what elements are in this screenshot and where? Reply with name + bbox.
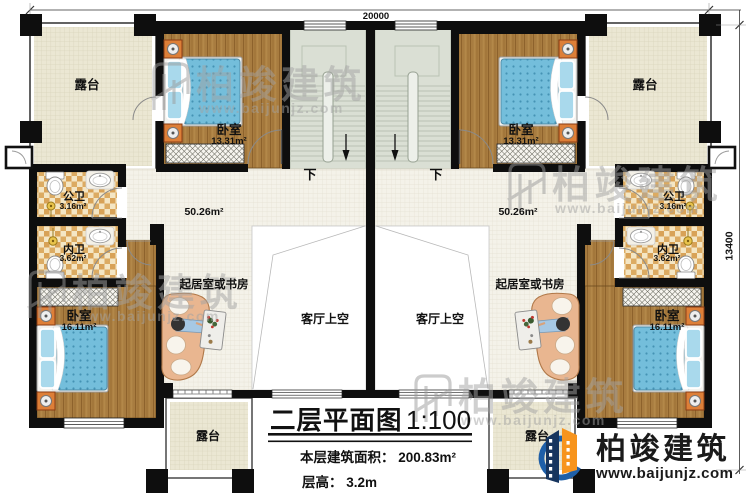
svg-text:露台: 露台 bbox=[74, 77, 99, 92]
svg-text:16.11m²: 16.11m² bbox=[62, 322, 97, 333]
svg-text:起居室或书房: 起居室或书房 bbox=[179, 277, 249, 291]
svg-text:客厅上空: 客厅上空 bbox=[300, 311, 349, 326]
svg-text:50.26m²: 50.26m² bbox=[498, 206, 538, 218]
svg-text:起居室或书房: 起居室或书房 bbox=[495, 277, 565, 291]
svg-text:露台: 露台 bbox=[632, 77, 657, 92]
svg-text:3.62m²: 3.62m² bbox=[654, 253, 681, 263]
svg-text:3.62m²: 3.62m² bbox=[60, 253, 87, 263]
svg-text:16.11m²: 16.11m² bbox=[650, 322, 685, 333]
svg-text:www.baijunjz.com: www.baijunjz.com bbox=[198, 100, 344, 116]
svg-text:50.26m²: 50.26m² bbox=[184, 206, 224, 218]
svg-text:13.31m²: 13.31m² bbox=[503, 136, 538, 147]
svg-text:www.baijunjz.com: www.baijunjz.com bbox=[595, 465, 733, 482]
svg-text:柏竣建筑: 柏竣建筑 bbox=[596, 432, 730, 466]
svg-text:本层建筑面积： 200.83m²: 本层建筑面积： 200.83m² bbox=[300, 449, 457, 465]
svg-text:3.16m²: 3.16m² bbox=[660, 201, 687, 211]
svg-text:下: 下 bbox=[303, 167, 316, 182]
svg-text:卧室: 卧室 bbox=[66, 308, 92, 323]
svg-text:下: 下 bbox=[429, 167, 442, 182]
svg-text:露台: 露台 bbox=[525, 428, 549, 443]
svg-text:3.16m²: 3.16m² bbox=[60, 201, 87, 211]
svg-text:卧室: 卧室 bbox=[508, 122, 534, 137]
svg-text:层高： 3.2m: 层高： 3.2m bbox=[302, 474, 377, 490]
svg-text:露台: 露台 bbox=[196, 428, 220, 443]
svg-text:13400: 13400 bbox=[724, 231, 736, 260]
svg-text:www.baijunjz.com: www.baijunjz.com bbox=[460, 412, 606, 428]
svg-text:20000: 20000 bbox=[363, 11, 389, 22]
svg-text:卧室: 卧室 bbox=[216, 122, 242, 137]
svg-text:卧室: 卧室 bbox=[654, 308, 680, 323]
svg-text:1:100: 1:100 bbox=[406, 405, 471, 435]
svg-text:13.31m²: 13.31m² bbox=[211, 136, 246, 147]
svg-text:客厅上空: 客厅上空 bbox=[415, 311, 464, 326]
svg-text:二层平面图: 二层平面图 bbox=[270, 407, 403, 435]
